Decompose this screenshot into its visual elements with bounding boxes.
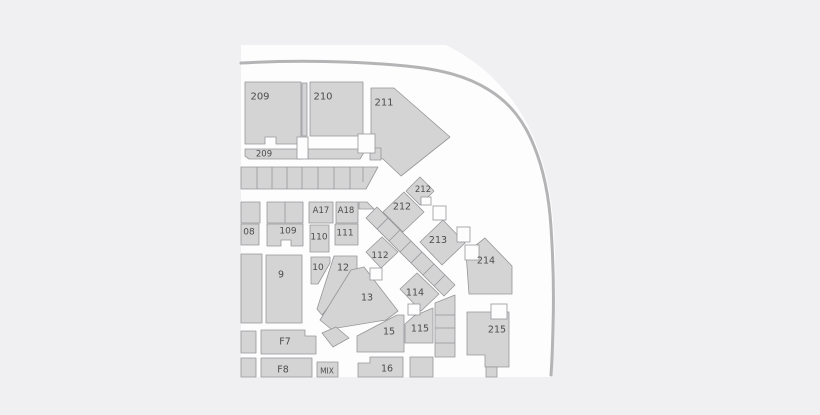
seating-map-canvas: 209210211209A17A180810911011121221221321… [0,0,820,415]
section-215-tab [486,367,497,377]
section-210[interactable] [310,82,363,136]
aisle-opening [421,197,431,205]
aisle-opening [358,134,375,153]
section-111[interactable] [335,224,358,245]
aisle-opening [297,137,308,159]
row-block-a [241,202,260,223]
section-mix[interactable] [317,362,338,377]
stairs-209-210 [302,83,307,136]
aisle-opening [408,304,420,315]
section-209-lower[interactable] [245,149,302,159]
terrace-row [241,167,378,189]
f8-left-cell [241,358,256,377]
section-108[interactable] [241,224,259,245]
aisle-opening [465,245,479,260]
aisle-opening [433,206,446,220]
left-column-block [241,254,262,323]
aisle-opening [370,268,382,280]
section-f8[interactable] [261,358,312,377]
section-a17[interactable] [309,202,333,223]
aisle-opening [457,227,470,242]
section-209-upper[interactable] [245,82,301,144]
section-110[interactable] [310,225,329,252]
aisle-opening [491,304,507,319]
section-a18[interactable] [336,202,358,223]
section-9[interactable] [266,255,302,323]
block-right-of-16 [410,357,433,377]
seat-map-svg: 209210211209A17A180810911011121221221321… [0,0,820,415]
strip-under-210 [308,149,366,159]
f7-left-cell [241,331,256,353]
stair-column [435,295,455,357]
